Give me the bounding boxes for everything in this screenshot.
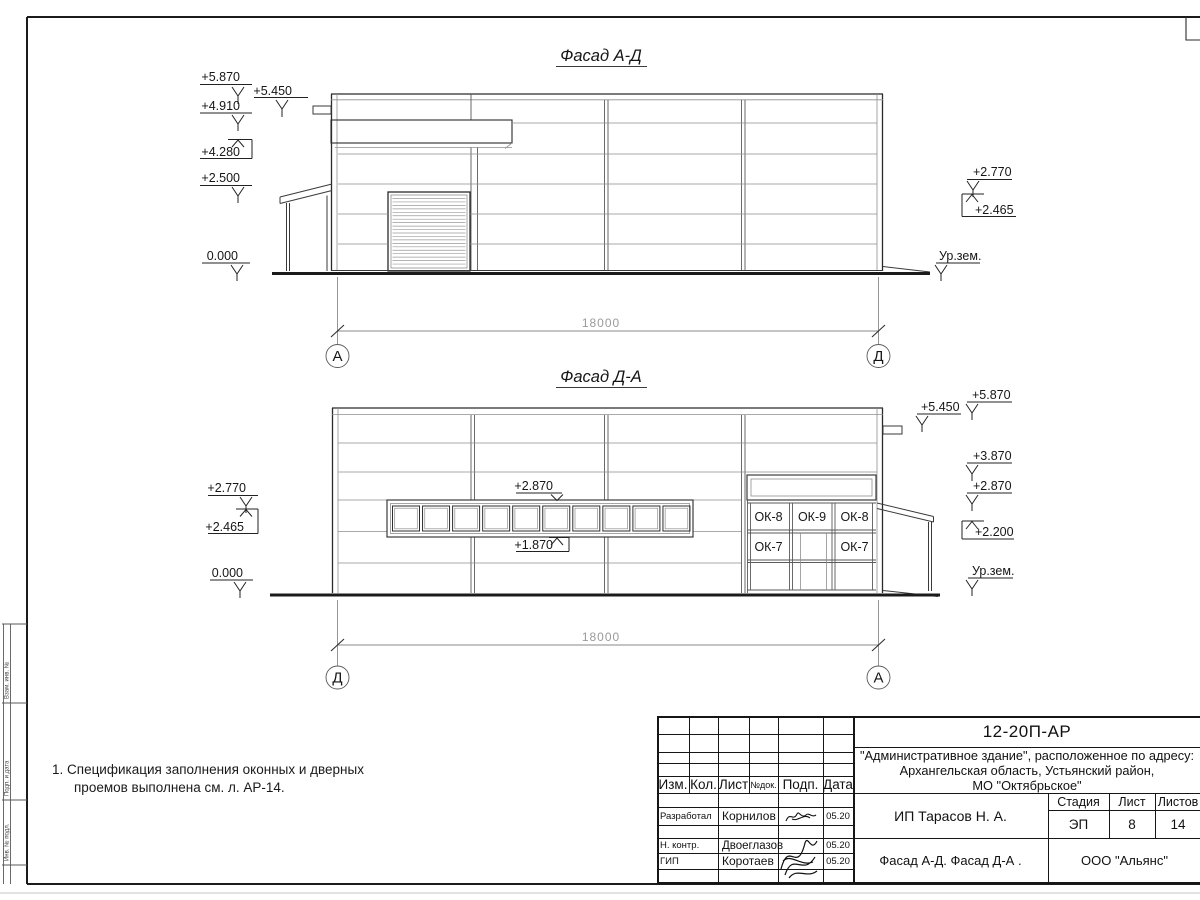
roller-door xyxy=(388,192,470,271)
facade-bottom: Фасад Д-А ОК-8 ОК-9 ОК-8 ОК-7 ОК-7 xyxy=(205,368,1014,689)
signature-ncontrol-gip xyxy=(773,831,827,881)
frame-corner-box xyxy=(1186,17,1200,40)
porch-left xyxy=(280,184,332,271)
level-mark-label: Ур.зем. xyxy=(972,564,1014,578)
window-label: ОК-9 xyxy=(798,510,826,524)
ground-line-bottom xyxy=(270,594,940,597)
note-line-1: 1. Спецификация заполнения оконных и две… xyxy=(52,761,364,779)
axis-label: Д xyxy=(873,348,883,365)
dimension-top: 18000 А Д xyxy=(326,277,890,368)
porch-right xyxy=(877,503,938,597)
level-mark-label: +2.465 xyxy=(975,203,1014,217)
level-mark-label: +3.870 xyxy=(973,449,1012,463)
level-mark-label: +5.450 xyxy=(253,84,292,98)
tb-stage-label: Стадия xyxy=(1048,793,1109,810)
level-mark-label: +2.770 xyxy=(973,165,1012,179)
drawing-note: 1. Спецификация заполнения оконных и две… xyxy=(52,761,364,797)
tb-doc-number: 12-20П-АР xyxy=(853,716,1200,747)
ribbon-windows xyxy=(393,506,690,531)
level-mark-label: 0.000 xyxy=(207,249,238,263)
level-mark-label: +1.870 xyxy=(514,538,553,552)
tb-client: ИП Тарасов Н. А. xyxy=(853,793,1048,838)
level-mark-label: +4.280 xyxy=(201,145,240,159)
tb-date-gip: 05.20 xyxy=(823,853,853,869)
tb-company: ООО "Альянс" xyxy=(1048,838,1200,882)
level-mark-label: +5.870 xyxy=(972,388,1011,402)
dimension-value: 18000 xyxy=(582,630,620,644)
drawing-sheet: Взам. инв. № Подп. и дата Инв. № подл. Ф… xyxy=(0,0,1200,900)
facade-top: Фасад А-Д +5.870 +5.45 xyxy=(200,47,1016,368)
tb-header-kol: Кол. xyxy=(689,776,718,793)
tb-sheet-label: Лист xyxy=(1109,793,1155,810)
tb-project-line3: МО "Октябрьское" xyxy=(972,778,1081,793)
level-marks-bottom-left: +2.770 +2.465 0.000 xyxy=(205,481,258,598)
dimension-bottom: 18000 Д А xyxy=(326,600,890,689)
ground-line-top xyxy=(272,272,930,275)
storefront: ОК-8 ОК-9 ОК-8 ОК-7 ОК-7 xyxy=(747,475,876,593)
tb-role-ncontrol: Н. контр. xyxy=(657,838,721,853)
strip-label-2: Подп. и дата xyxy=(5,760,11,796)
tb-sheet-title: Фасад А-Д. Фасад Д-А . xyxy=(853,838,1048,882)
level-marks-top-right: +2.770 +2.465 Ур.зем. xyxy=(935,165,1016,281)
tb-project-line2: Архангельская область, Устьянский район, xyxy=(900,763,1155,778)
tb-name-developer: Корнилов xyxy=(719,807,781,825)
facade-top-title: Фасад А-Д xyxy=(560,47,642,65)
level-mark-label: +5.450 xyxy=(921,400,960,414)
tb-sheet-value: 8 xyxy=(1109,810,1155,838)
strip-label-3: Инв. № подл. xyxy=(4,823,11,861)
canopy-band xyxy=(331,120,512,149)
tb-date-developer: 05.20 xyxy=(823,807,853,825)
window-label: ОК-8 xyxy=(754,510,782,524)
dimension-value: 18000 xyxy=(582,316,620,330)
pipe-right xyxy=(883,426,902,434)
tb-header-izm: Изм. xyxy=(657,776,689,793)
axis-label: А xyxy=(332,348,342,365)
axis-label: Д xyxy=(332,670,342,687)
pipe-left xyxy=(313,106,331,114)
title-block: Изм. Кол. Лист №док. Подп. Дата Разработ… xyxy=(657,716,1200,884)
level-marks-bottom-center: +2.870 +1.870 xyxy=(514,479,569,552)
window-label: ОК-8 xyxy=(840,510,868,524)
tb-role-gip: ГИП xyxy=(657,853,721,869)
tb-header-list: Лист xyxy=(718,776,749,793)
tb-name-ncontrol: Двоеглазов xyxy=(719,838,781,853)
level-mark-label: +2.870 xyxy=(973,479,1012,493)
strip-label-1: Взам. инв. № xyxy=(4,662,11,699)
level-mark-label: +4.910 xyxy=(201,99,240,113)
ribbon-window-band xyxy=(387,500,693,537)
tb-sheets-label: Листов xyxy=(1155,793,1200,810)
level-marks-bottom-right: +5.870 +5.450 +3.870 +2.870 +2.200 Ур.зе… xyxy=(916,388,1014,596)
tb-project-line1: "Административное здание", расположенное… xyxy=(860,748,1194,763)
level-mark-label: +2.465 xyxy=(205,520,244,534)
tb-stage-value: ЭП xyxy=(1048,810,1109,838)
tb-header-data: Дата xyxy=(823,776,853,793)
level-mark-label: 0.000 xyxy=(212,566,243,580)
level-mark-label: +2.870 xyxy=(514,479,553,493)
left-attribute-strip: Взам. инв. № Подп. и дата Инв. № подл. xyxy=(2,624,27,884)
tb-date-ncontrol: 05.20 xyxy=(823,838,853,853)
window-label: ОК-7 xyxy=(754,540,782,554)
level-mark-label: Ур.зем. xyxy=(939,249,981,263)
level-mark-label: +2.770 xyxy=(207,481,246,495)
tb-project-description: "Административное здание", расположенное… xyxy=(853,747,1200,793)
window-label: ОК-7 xyxy=(840,540,868,554)
level-mark-label: +5.870 xyxy=(201,70,240,84)
axis-label: А xyxy=(873,670,883,687)
level-mark-label: +2.200 xyxy=(975,525,1014,539)
tb-sheets-value: 14 xyxy=(1155,810,1200,838)
tb-name-gip: Коротаев xyxy=(719,853,781,869)
tb-header-podp: Подп. xyxy=(778,776,823,793)
tb-header-ndok: №док. xyxy=(749,776,778,793)
signature-developer xyxy=(780,808,822,825)
level-mark-label: +2.500 xyxy=(201,171,240,185)
roller-door-slats xyxy=(393,199,466,265)
note-line-2: проемов выполнена см. л. АР-14. xyxy=(52,779,364,797)
facade-bottom-title: Фасад Д-А xyxy=(560,368,642,386)
tb-role-developer: Разработал xyxy=(657,807,721,825)
level-marks-top-left: +5.870 +5.450 +4.910 +4.280 +2.500 0.000 xyxy=(200,70,308,281)
